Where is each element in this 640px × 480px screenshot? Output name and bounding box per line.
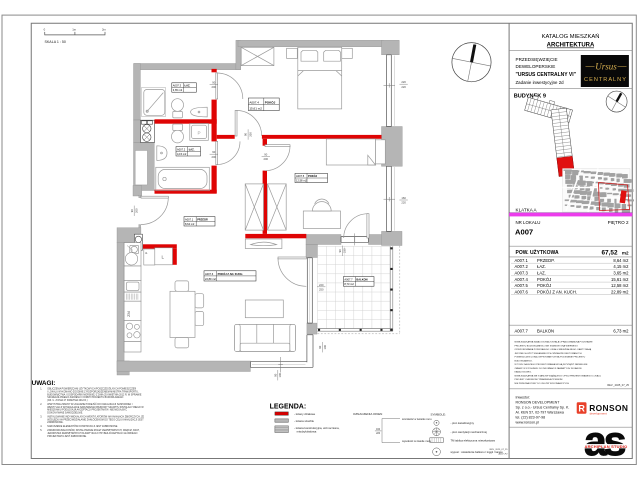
svg-text:ŁAZ.: ŁAZ. bbox=[537, 271, 546, 276]
svg-text:Zadanie inwestycyjne 2d: Zadanie inwestycyjne 2d bbox=[516, 80, 565, 85]
svg-text:POKÓJ: POKÓJ bbox=[537, 277, 551, 282]
svg-text:SKALA 1 : 50: SKALA 1 : 50 bbox=[45, 40, 66, 44]
svg-text:INSTALOWANIE INDYWIDUALNYCH WE: INSTALOWANIE INDYWIDUALNYCH WENTYLATORÓW… bbox=[47, 415, 144, 418]
svg-text:"URSUS CENTRALNY VI": "URSUS CENTRALNY VI" bbox=[516, 72, 577, 78]
svg-text:P: P bbox=[197, 130, 200, 135]
svg-text:wysokość w świetle muru: wysokość w świetle muru bbox=[402, 439, 432, 443]
svg-text:230: 230 bbox=[343, 248, 347, 253]
svg-text:tŁ: tŁ bbox=[145, 251, 148, 255]
svg-text:- pion kanalizacyjny: - pion kanalizacyjny bbox=[451, 421, 475, 425]
svg-text:90: 90 bbox=[244, 133, 248, 136]
svg-text:100: 100 bbox=[278, 372, 282, 377]
svg-text:200: 200 bbox=[264, 157, 269, 161]
svg-text:15,61 m2: 15,61 m2 bbox=[611, 277, 629, 282]
svg-text:- ściany działowe: - ściany działowe bbox=[294, 412, 316, 416]
svg-text:WSZYSTKIE ZMIANY W UKŁADZIE PO: WSZYSTKIE ZMIANY W UKŁADZIE PODEJŚĆ DO K… bbox=[47, 403, 133, 406]
svg-text:OBLICZENIA POWIERZCHNI UŻYTKOW: OBLICZENIA POWIERZCHNI UŻYTKOWYCH POSZCZ… bbox=[47, 388, 136, 391]
svg-text:OZNACZENIA OKIEN: OZNACZENIA OKIEN bbox=[353, 412, 382, 416]
svg-text:ŁAZ.: ŁAZ. bbox=[189, 147, 195, 151]
svg-text:220: 220 bbox=[319, 283, 324, 287]
svg-text:CENTRALNY: CENTRALNY bbox=[584, 77, 627, 83]
svg-text:2.: 2. bbox=[40, 404, 42, 406]
svg-text:NINIEJSZA KARTA KATALOGOWA ZOS: NINIEJSZA KARTA KATALOGOWA ZOSTAŁA OPRAC… bbox=[515, 341, 594, 344]
svg-text:Sp. z o.o.- Ursus Centralny Sp: Sp. z o.o.- Ursus Centralny Sp. K. bbox=[516, 406, 570, 410]
svg-text:PRZEDP.: PRZEDP. bbox=[537, 258, 555, 263]
svg-text:90: 90 bbox=[273, 373, 277, 376]
svg-text:A007.7: A007.7 bbox=[344, 277, 353, 281]
svg-text:BALKON: BALKON bbox=[537, 329, 554, 334]
svg-text:8,64 m2: 8,64 m2 bbox=[613, 258, 629, 263]
svg-text:PROJEKTU BUDOWLANEGO, NIE STAN: PROJEKTU BUDOWLANEGO, NIE STANOWI ONA WI… bbox=[515, 344, 579, 347]
svg-text:ZABRONIONE.: ZABRONIONE. bbox=[47, 421, 63, 424]
svg-text:SYMBOLE:: SYMBOLE: bbox=[431, 413, 447, 417]
svg-text:Al. KEN 57, 02-797 Warszawa: Al. KEN 57, 02-797 Warszawa bbox=[516, 411, 564, 415]
svg-text:220: 220 bbox=[376, 432, 381, 435]
svg-text:WZGLĘDU NA PRZECIWDZIAŁANIE ZA: WZGLĘDU NA PRZECIWDZIAŁANIE ZAKŁÓCENIOM … bbox=[47, 418, 144, 421]
svg-text:A007.6: A007.6 bbox=[515, 289, 529, 294]
svg-text:LEGENDA:: LEGENDA: bbox=[270, 404, 307, 411]
svg-text:4,15 m2: 4,15 m2 bbox=[177, 152, 187, 156]
svg-text:15,61 m2: 15,61 m2 bbox=[249, 106, 262, 110]
svg-text:PROJEKT CHRONIONY PRAWEM AUTOR: PROJEKT CHRONIONY PRAWEM AUTORSKIM bbox=[515, 378, 563, 381]
svg-text:90: 90 bbox=[318, 345, 322, 348]
svg-text:międzylokalowa: międzylokalowa bbox=[297, 429, 317, 433]
svg-text:NINIEJSZA KARTA NIE STANOWI WI: NINIEJSZA KARTA NIE STANOWI WIĄŻĄCEGO OP… bbox=[515, 374, 602, 377]
svg-text:PRZEDSIĘWZIĘCIE: PRZEDSIĘWZIĘCIE bbox=[516, 57, 558, 62]
svg-text:NARUSZENIE ELEMENTÓW KONSTRUKC: NARUSZENIE ELEMENTÓW KONSTRUKCJI JEST ZA… bbox=[47, 425, 118, 428]
svg-text:KLATKA A: KLATKA A bbox=[516, 207, 538, 212]
svg-text:PROJEKTANTA JEST ZABRONIONE.: PROJEKTANTA JEST ZABRONIONE. bbox=[47, 435, 87, 438]
svg-text:KATALOGOWEJ.: KATALOGOWEJ. bbox=[515, 371, 532, 374]
svg-text:- pion wentylacji mechanicznej: - pion wentylacji mechanicznej bbox=[451, 430, 488, 434]
svg-text:200: 200 bbox=[134, 208, 138, 213]
svg-text:PRZEDP.: PRZEDP. bbox=[197, 217, 208, 221]
svg-text:NR LOKALU: NR LOKALU bbox=[516, 220, 541, 225]
svg-text:4.: 4. bbox=[40, 426, 42, 428]
svg-text:22,89 m2: 22,89 m2 bbox=[205, 277, 216, 281]
svg-text:ŁAZ.: ŁAZ. bbox=[537, 264, 546, 269]
svg-text:BUDOWLANEGO.: BUDOWLANEGO. bbox=[515, 359, 534, 362]
svg-text:200: 200 bbox=[212, 85, 217, 89]
svg-text:90: 90 bbox=[264, 152, 267, 156]
svg-text:POW. UŻYTKOWA: POW. UŻYTKOWA bbox=[516, 249, 559, 256]
svg-text:160: 160 bbox=[401, 196, 406, 200]
svg-text:8,64 m2: 8,64 m2 bbox=[185, 222, 195, 226]
svg-text:W TOKU DALSZEGO PROJEKTOWANIA: W TOKU DALSZEGO PROJEKTOWANIA MOGĄ WYSTĄ… bbox=[515, 363, 589, 366]
svg-text:3.: 3. bbox=[40, 416, 42, 418]
svg-text:TM tablica elektryczna mies: TM tablica elektryczna mieszkaniowa bbox=[451, 439, 496, 443]
svg-text:ZABUDOWA BALKONÓW, INSTALOWANI: ZABUDOWA BALKONÓW, INSTALOWANIE ROLET ZE… bbox=[47, 429, 140, 432]
svg-text:A007.5: A007.5 bbox=[296, 174, 305, 178]
svg-text:POMIESZCZEŃ LOKALI WPISYWANYCH: POMIESZCZEŃ LOKALI WPISYWANYCH NA PODSTA… bbox=[515, 356, 586, 359]
svg-text:development: development bbox=[590, 412, 607, 416]
svg-text:12,58 m2: 12,58 m2 bbox=[296, 178, 307, 182]
svg-text:A007.5: A007.5 bbox=[515, 283, 529, 288]
svg-text:A007.3: A007.3 bbox=[173, 84, 182, 88]
svg-text:JEDNOSTEK ZEWNĘTRZNYCH KLIMATY: JEDNOSTEK ZEWNĘTRZNYCH KLIMATYZACJI ITP.… bbox=[47, 432, 137, 435]
svg-text:200: 200 bbox=[248, 132, 252, 137]
svg-text:3,65 m2: 3,65 m2 bbox=[173, 88, 183, 92]
svg-text:ZM: ZM bbox=[126, 311, 131, 317]
svg-text:WENTYLACJI WYMAGAJĄCE NARUSZEN: WENTYLACJI WYMAGAJĄCE NARUSZENIA OBUDOWY… bbox=[47, 406, 144, 409]
svg-text:90: 90 bbox=[212, 80, 215, 84]
svg-text:1.: 1. bbox=[40, 389, 42, 391]
svg-text:5.: 5. bbox=[40, 430, 42, 432]
svg-text:Inwestor:: Inwestor: bbox=[516, 396, 531, 400]
svg-text:A007.4: A007.4 bbox=[249, 100, 259, 104]
svg-text:1m: 1m bbox=[72, 28, 77, 32]
svg-text:DEWELOPERSKIE: DEWELOPERSKIE bbox=[516, 64, 556, 69]
svg-text:Ursus: Ursus bbox=[595, 62, 617, 72]
svg-text:A007.4: A007.4 bbox=[515, 277, 529, 282]
svg-text:BALKON: BALKON bbox=[356, 277, 367, 281]
svg-text:REV._2025_07_25: REV._2025_07_25 bbox=[607, 383, 629, 387]
svg-text:KATALOG MIESZKAŃ: KATALOG MIESZKAŃ bbox=[542, 33, 600, 40]
svg-text:ŁAZ.: ŁAZ. bbox=[185, 84, 191, 88]
svg-text:A007.2: A007.2 bbox=[177, 147, 186, 151]
svg-text:12,58 m2: 12,58 m2 bbox=[611, 283, 629, 288]
svg-text:DOKONYWANE SAMODZIELNIE.: DOKONYWANE SAMODZIELNIE. bbox=[47, 412, 83, 415]
svg-text:tel. (22) 823-97-98: tel. (22) 823-97-98 bbox=[516, 416, 546, 420]
svg-text:www.ronson.pl: www.ronson.pl bbox=[516, 421, 540, 425]
svg-text:ODWZOROWANIA POWSTAŁEGO LOKALU: ODWZOROWANIA POWSTAŁEGO LOKALU MIESZKALN… bbox=[515, 348, 592, 351]
svg-text:A007.1: A007.1 bbox=[185, 217, 194, 221]
svg-text:m2: m2 bbox=[622, 250, 629, 255]
svg-text:100: 100 bbox=[323, 344, 327, 349]
svg-text:8,73 m2: 8,73 m2 bbox=[344, 282, 354, 286]
svg-text:A007.2: A007.2 bbox=[515, 264, 529, 269]
svg-text:160: 160 bbox=[376, 428, 381, 431]
svg-text:ZMIANY W STOSUNKU DO INFORMACJ: ZMIANY W STOSUNKU DO INFORMACJI ZAWARTYC… bbox=[515, 367, 583, 370]
svg-text:ARCHIPLAN STUDIO: ARCHIPLAN STUDIO bbox=[585, 444, 628, 449]
svg-text:22,89 m2: 22,89 m2 bbox=[611, 289, 629, 294]
svg-text:90: 90 bbox=[212, 150, 215, 154]
svg-text:2m: 2m bbox=[102, 28, 107, 32]
svg-text:220: 220 bbox=[401, 85, 406, 89]
svg-text:BUDOWNICTWA I GOSPODARKI MORSK: BUDOWNICTWA I GOSPODARKI MORSKIEJ Z DNIA… bbox=[47, 393, 142, 396]
svg-text:RONSON DEVELOPMENT: RONSON DEVELOPMENT bbox=[516, 401, 561, 405]
svg-text:A007.3: A007.3 bbox=[515, 271, 529, 276]
svg-text:220: 220 bbox=[401, 201, 406, 205]
svg-text:250: 250 bbox=[319, 287, 324, 291]
svg-text:A007.6: A007.6 bbox=[205, 272, 214, 276]
svg-text:as: as bbox=[584, 418, 626, 464]
svg-text:220: 220 bbox=[401, 80, 406, 84]
svg-text:A007.7: A007.7 bbox=[515, 329, 529, 334]
svg-text:PIĘTRO 2: PIĘTRO 2 bbox=[608, 220, 629, 225]
svg-text:R: R bbox=[578, 403, 585, 413]
svg-text:67,52: 67,52 bbox=[602, 249, 618, 256]
svg-text:(DZ. U. Z DNIA 27 KWIETNIA 201: (DZ. U. Z DNIA 27 KWIETNIA 2012 R.) bbox=[47, 399, 87, 402]
svg-text:POKÓJ: POKÓJ bbox=[265, 99, 276, 104]
svg-text:POKÓJ Z AN. KUCH.: POKÓJ Z AN. KUCH. bbox=[537, 289, 577, 294]
svg-text:90: 90 bbox=[130, 209, 134, 212]
svg-text:JEDYNIE SŁUŻYĆ WSKAZANIU POŁOŻ: JEDYNIE SŁUŻYĆ WSKAZANIU POŁOŻENIA PROJE… bbox=[515, 352, 583, 355]
svg-text:POKÓJ: POKÓJ bbox=[537, 283, 551, 288]
svg-text:wypust : oświetlenie balkonu /: wypust : oświetlenie balkonu / loggii / … bbox=[451, 450, 504, 454]
svg-text:szerokość w świetle muru: szerokość w świetle muru bbox=[402, 417, 432, 421]
svg-text:MIESZKANIU PODLEGAJĄ AKCEPTACJ: MIESZKANIU PODLEGAJĄ AKCEPTACJI PROJEKTA… bbox=[47, 409, 127, 412]
svg-text:A007.1: A007.1 bbox=[515, 258, 529, 263]
svg-text:90: 90 bbox=[338, 249, 342, 252]
svg-text:6,73 m2: 6,73 m2 bbox=[613, 329, 629, 334]
svg-text:I LOKALU WYKONANO ZGODNIE Z RO: I LOKALU WYKONANO ZGODNIE Z ROZPORZĄDZEN… bbox=[47, 390, 139, 393]
svg-text:- ściana szachtu: - ściana szachtu bbox=[294, 419, 315, 423]
svg-text:200: 200 bbox=[212, 155, 217, 159]
svg-text:A007: A007 bbox=[515, 228, 533, 237]
svg-text:SZCZEGÓŁOWEGO ZAKRESU I FORMY: SZCZEGÓŁOWEGO ZAKRESU I FORMY PROJEKTU B… bbox=[47, 396, 123, 399]
svg-text:4,15 m2: 4,15 m2 bbox=[613, 264, 629, 269]
svg-text:UWAGI:: UWAGI: bbox=[32, 380, 56, 387]
svg-text:3,65 m2: 3,65 m2 bbox=[613, 271, 629, 276]
svg-text:NIE PRZEZNACZONY DO CELÓW WYKO: NIE PRZEZNACZONY DO CELÓW WYKONAWCZYCH bbox=[515, 382, 570, 385]
